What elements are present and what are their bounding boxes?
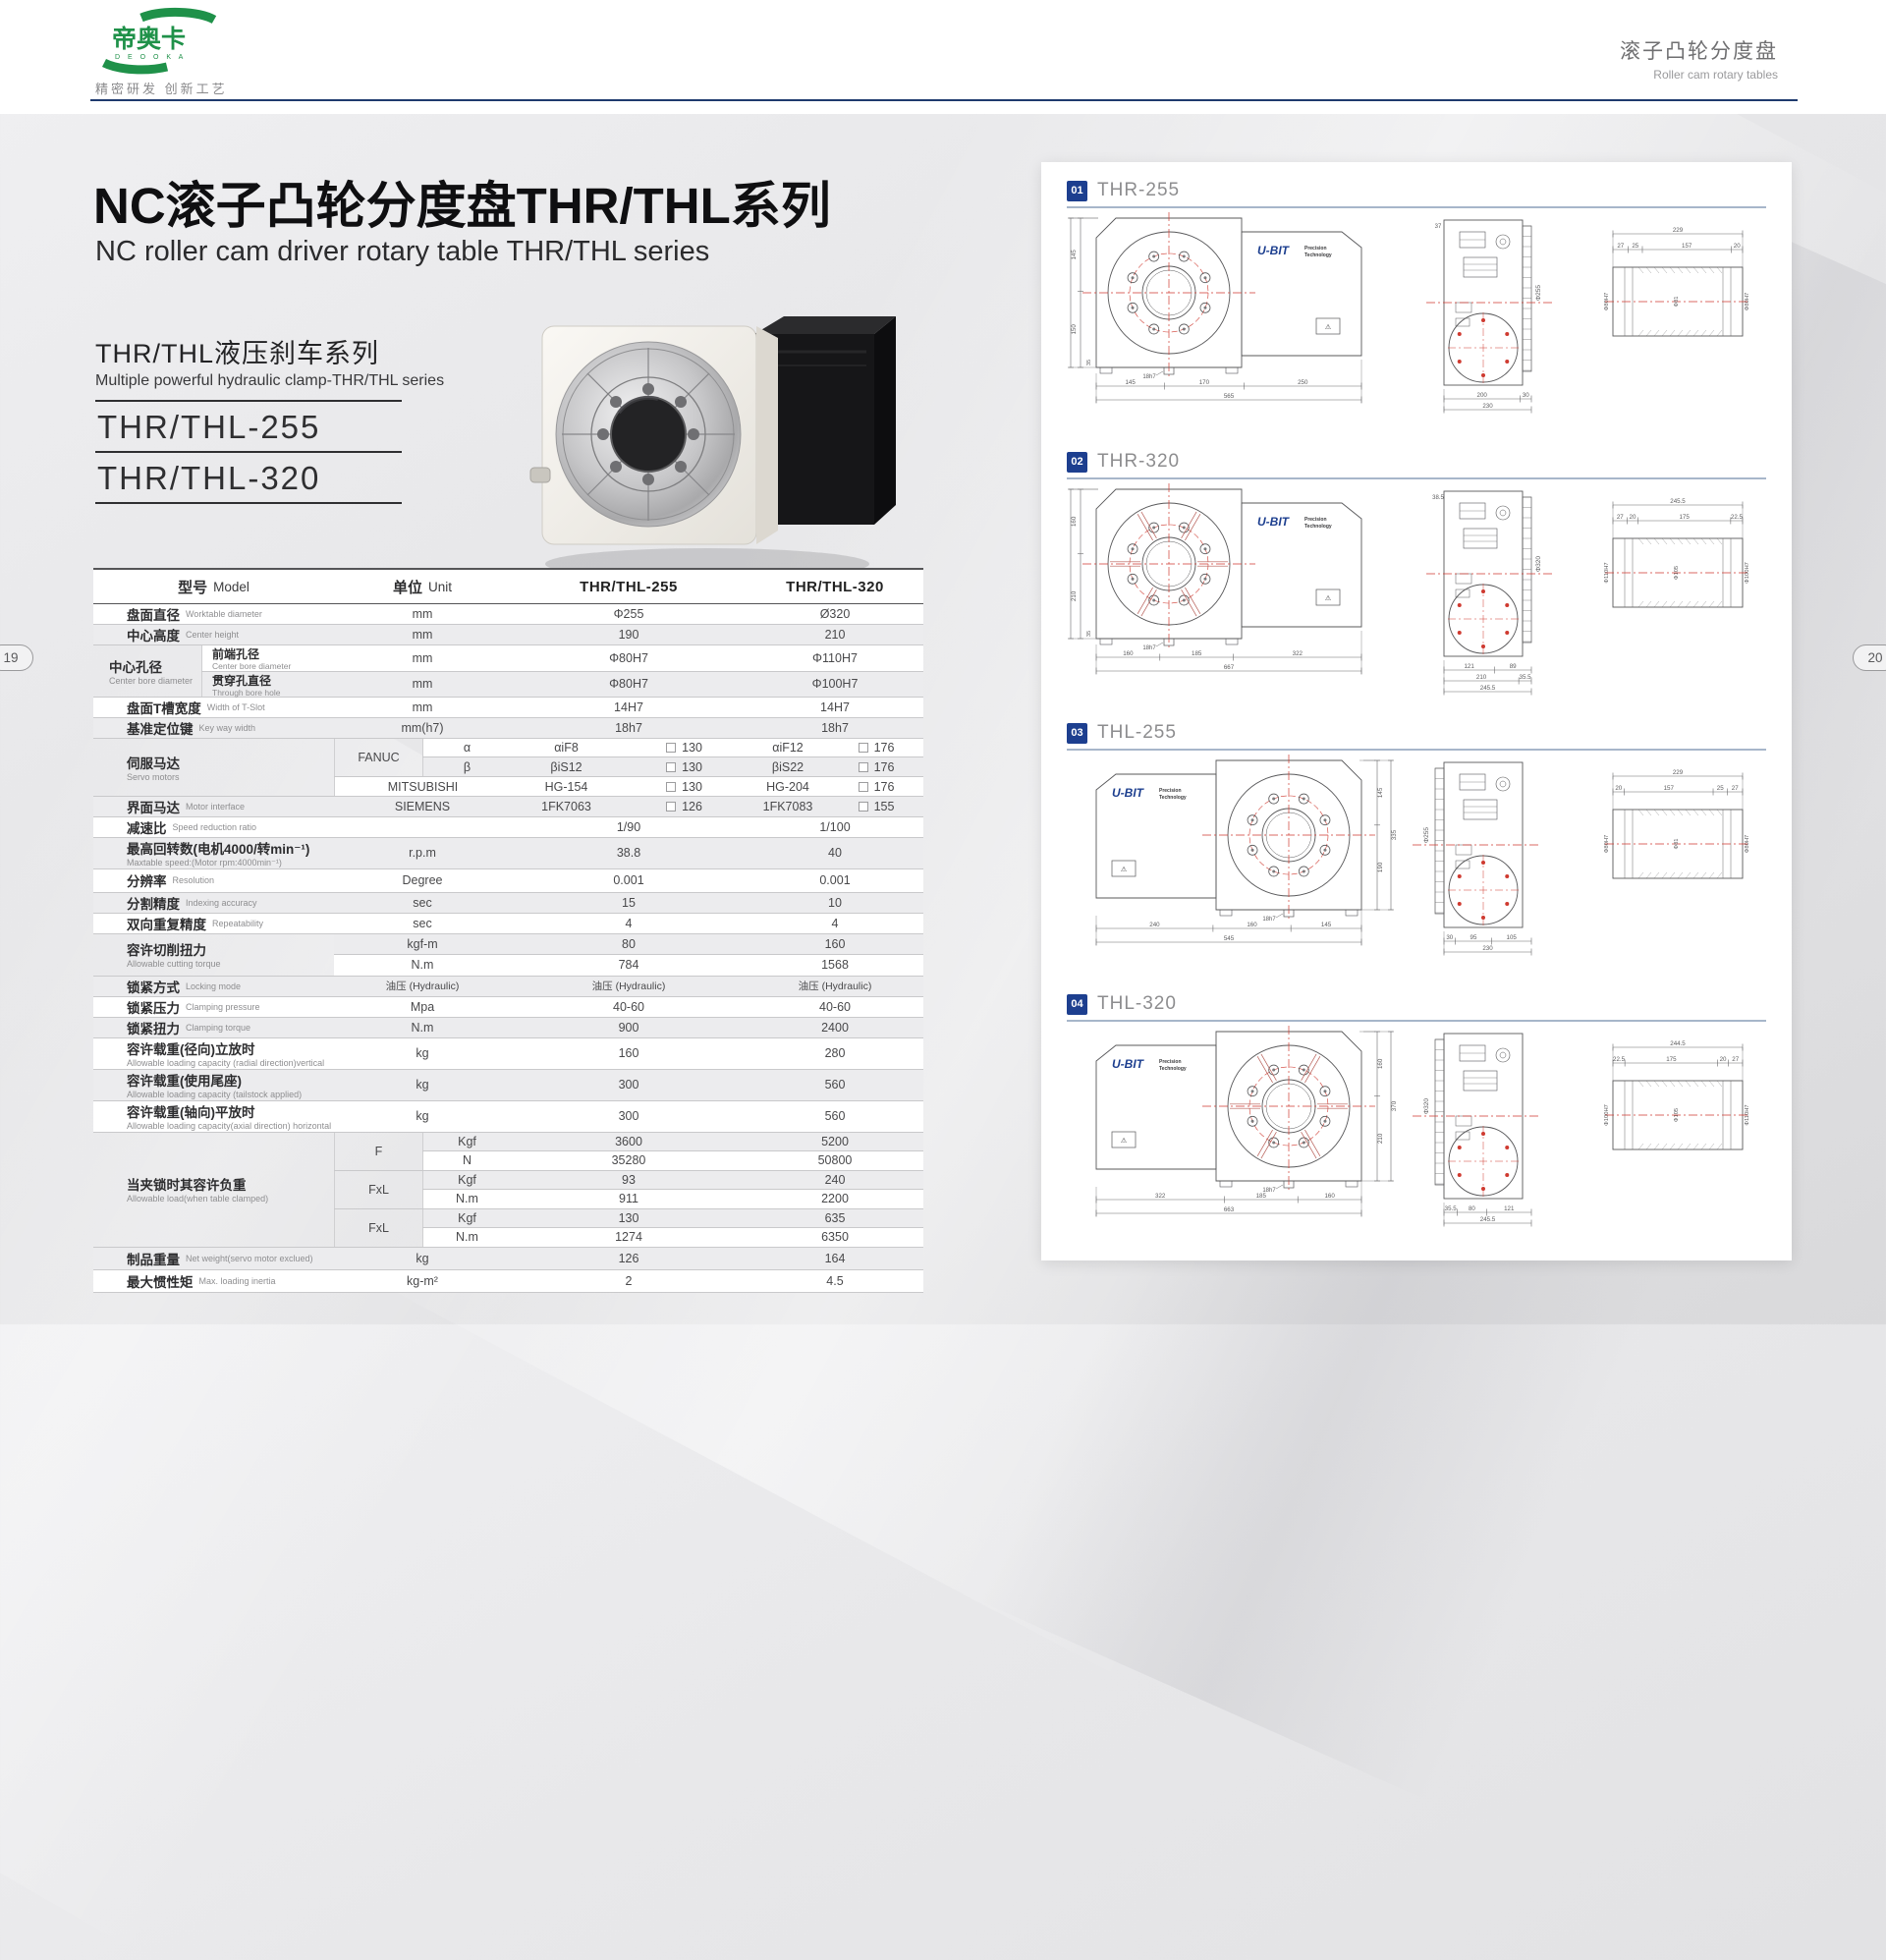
label-zh: 减速比 — [127, 817, 167, 837]
model-name: THR/THL-320 — [95, 453, 402, 504]
svg-text:185: 185 — [1192, 650, 1202, 657]
row-label: 当夹锁时其容许负重Allowable load(when table clamp… — [93, 1133, 334, 1247]
force-label: FxL — [334, 1209, 422, 1247]
end-view: 229201572527Φ80H7Φ81Φ80H7 — [1604, 769, 1750, 878]
value-cell: 130 — [511, 1209, 747, 1227]
svg-text:Precision: Precision — [1304, 246, 1327, 252]
page-number-left: 19 — [0, 644, 33, 671]
label-zh: 最大惯性矩 — [127, 1271, 194, 1291]
label-en: Indexing accuracy — [186, 898, 257, 908]
label-en: Center bore diameter — [212, 662, 334, 671]
value-cell: 911 — [511, 1190, 747, 1208]
svg-text:U-BIT: U-BIT — [1257, 515, 1291, 529]
series-title-zh: THR/THL液压刹车系列 — [95, 332, 402, 370]
svg-text:27: 27 — [1617, 514, 1624, 521]
value-cell: 2200 — [747, 1190, 923, 1208]
technical-drawing: U-BITPrecisionTechnology⚠145190335240160… — [1067, 751, 1760, 971]
unit-cell: N.m — [422, 1190, 511, 1208]
svg-text:210: 210 — [1476, 674, 1487, 681]
value-cell: HG-154 — [511, 777, 622, 796]
value-cell: mm — [334, 672, 511, 698]
svg-text:Φ100H7: Φ100H7 — [1604, 1104, 1610, 1126]
svg-text:⚠: ⚠ — [1121, 866, 1128, 873]
row-sublabel: 贯穿孔直径Through bore hole — [201, 672, 334, 698]
product-photo — [521, 283, 906, 589]
row-label: 容许切削扭力Allowable cutting torque — [93, 934, 334, 976]
label-en: Allowable load(when table clamped) — [127, 1195, 268, 1204]
svg-text:663: 663 — [1224, 1206, 1235, 1213]
value-cell: 300 — [511, 1101, 747, 1132]
section-number-badge: 03 — [1067, 723, 1087, 744]
label-zh: 当夹锁时其容许负重 — [127, 1174, 247, 1194]
table-row: 前端孔径Center bore diametermmΦ80H7Φ110H7 — [201, 645, 923, 672]
value-cell: βiS22 — [747, 757, 829, 776]
svg-text:Φ80H7: Φ80H7 — [1745, 293, 1750, 310]
force-rows: Kgf93240N.m9112200 — [422, 1171, 923, 1208]
svg-text:200: 200 — [1477, 392, 1488, 399]
svg-text:35.5: 35.5 — [1520, 674, 1532, 681]
svg-text:157: 157 — [1664, 785, 1675, 792]
row-label: 锁紧压力Clamping pressure — [93, 997, 334, 1017]
value-cell: Φ80H7 — [511, 645, 747, 671]
label-en: Motor interface — [186, 802, 245, 812]
table-row: 锁紧扭力Clamping torqueN.m9002400 — [93, 1018, 923, 1038]
value-cell: sec — [334, 893, 511, 913]
section-title: THR-320 — [1097, 451, 1180, 473]
flange-size: 155 — [829, 797, 923, 816]
value-cell: mm(h7) — [334, 718, 511, 738]
svg-text:89: 89 — [1510, 663, 1517, 670]
label-en: Through bore hole — [212, 689, 334, 698]
value-cell: Mpa — [334, 997, 511, 1017]
svg-text:175: 175 — [1666, 1056, 1677, 1063]
value-cell: 240 — [747, 1171, 923, 1189]
logo-zh: 帝奥卡 — [112, 25, 186, 53]
table-row: 盘面T槽宽度Width of T-Slotmm14H714H7 — [93, 698, 923, 718]
svg-text:565: 565 — [1224, 393, 1235, 400]
row-label: 最高回转数(电机4000/转min⁻¹)Maxtable speed:(Moto… — [93, 838, 334, 868]
value-cell: 210 — [747, 625, 923, 644]
label-en: Center bore diameter — [109, 677, 193, 687]
label-zh: 型号 — [178, 577, 207, 597]
value-cell: sec — [334, 914, 511, 933]
value-cell: 2 — [511, 1270, 747, 1292]
flange-size: 176 — [829, 777, 923, 796]
table-row: 容许载重(径向)立放时Allowable loading capacity (r… — [93, 1038, 923, 1070]
value-cell: Degree — [334, 869, 511, 892]
label-zh: 容许载重(使用尾座) — [127, 1070, 242, 1090]
row-label: 最大惯性矩Max. loading inertia — [93, 1270, 334, 1292]
svg-text:18h7: 18h7 — [1142, 645, 1156, 651]
row-label: 锁紧方式Locking mode — [93, 977, 334, 996]
svg-text:210: 210 — [1377, 1133, 1384, 1144]
flange-size: 176 — [829, 757, 923, 776]
svg-text:160: 160 — [1071, 516, 1078, 527]
label-zh: 贯穿孔直径 — [212, 672, 334, 689]
value-cell: 10 — [747, 893, 923, 913]
unit-cell: Kgf — [422, 1133, 511, 1150]
svg-text:Technology: Technology — [1159, 795, 1187, 801]
table-row: Kgf93240 — [422, 1171, 923, 1190]
label-zh: 最高回转数(电机4000/转min⁻¹) — [127, 838, 309, 858]
side-view: Φ32038.51218921035.5245.5 — [1426, 491, 1554, 696]
svg-text:335: 335 — [1391, 829, 1398, 840]
svg-text:20: 20 — [1630, 514, 1636, 521]
label-en: Worktable diameter — [186, 609, 262, 619]
value-cell: mm — [334, 698, 511, 717]
table-row: ααiF8130αiF12176 — [422, 739, 923, 757]
svg-text:175: 175 — [1679, 514, 1690, 521]
svg-text:Precision: Precision — [1304, 517, 1327, 523]
value-cell: 1274 — [511, 1228, 747, 1247]
label-zh: 锁紧扭力 — [127, 1018, 180, 1037]
unit-cell: Kgf — [422, 1209, 511, 1227]
svg-text:Φ105: Φ105 — [1674, 1108, 1680, 1122]
category-zh: 滚子凸轮分度盘 — [1620, 35, 1778, 65]
svg-text:22.5: 22.5 — [1613, 1056, 1626, 1063]
value-cell: 0.001 — [511, 869, 747, 892]
value-cell: 40 — [747, 838, 923, 868]
table-row: 最高回转数(电机4000/转min⁻¹)Maxtable speed:(Moto… — [93, 838, 923, 869]
fanuc-group: FANUCααiF8130αiF12176ββiS12130βiS22176 — [334, 739, 923, 777]
svg-text:157: 157 — [1682, 243, 1692, 250]
row-sublabel: 前端孔径Center bore diameter — [201, 645, 334, 671]
svg-text:Φ110H7: Φ110H7 — [1745, 1104, 1750, 1125]
checkbox-icon — [666, 802, 676, 812]
svg-text:121: 121 — [1464, 663, 1474, 670]
section-number-badge: 02 — [1067, 452, 1087, 473]
section-title: THR-255 — [1097, 180, 1180, 201]
svg-text:545: 545 — [1224, 935, 1235, 942]
value-cell: 1/100 — [747, 817, 923, 837]
svg-text:35: 35 — [1086, 360, 1092, 365]
section-header: 03THL-255 — [1067, 722, 1766, 751]
svg-text:U-BIT: U-BIT — [1257, 244, 1291, 257]
svg-text:Precision: Precision — [1159, 1059, 1182, 1065]
table-row: N3528050800 — [422, 1151, 923, 1170]
value-cell: 160 — [511, 1038, 747, 1069]
label-en: Max. loading inertia — [199, 1276, 276, 1286]
value-cell: mm — [334, 625, 511, 644]
label-zh: 界面马达 — [127, 797, 180, 816]
row-label: 中心孔径Center bore diameter — [93, 645, 201, 697]
svg-text:95: 95 — [1470, 934, 1477, 941]
page-title-zh: NC滚子凸轮分度盘THR/THL系列 — [93, 165, 831, 238]
svg-text:230: 230 — [1482, 403, 1493, 410]
label-en: Net weight(servo motor exclued) — [186, 1254, 313, 1263]
checkbox-icon — [666, 743, 676, 753]
value-cell: 784 — [511, 955, 747, 976]
svg-text:Precision: Precision — [1159, 788, 1182, 794]
table-row: ββiS12130βiS22176 — [422, 757, 923, 776]
force-pair: FxLKgf130635N.m12746350 — [334, 1209, 923, 1247]
label-en: Width of T-Slot — [207, 702, 265, 712]
svg-text:322: 322 — [1293, 650, 1304, 657]
value-cell: 160 — [747, 934, 923, 954]
checkbox-icon — [859, 802, 868, 812]
end-view: 229272515720Φ80H7Φ81Φ80H7 — [1604, 227, 1750, 336]
value-cell: mm — [334, 604, 511, 624]
label-en: Servo motors — [127, 773, 180, 783]
drawing-section-thr-320: 02THR-320U-BITPrecisionTechnology⚠160210… — [1067, 451, 1766, 718]
section-title: THL-255 — [1097, 722, 1177, 744]
table-row: 分辨率ResolutionDegree0.0010.001 — [93, 869, 923, 893]
table-group-row: 容许切削扭力Allowable cutting torquekgf-m80160… — [93, 934, 923, 977]
flange-size: 130 — [622, 757, 747, 776]
greek-cell: β — [422, 757, 511, 776]
svg-text:160: 160 — [1377, 1058, 1384, 1069]
row-label: 中心高度Center height — [93, 625, 334, 644]
section-number-badge: 01 — [1067, 181, 1087, 201]
value-cell: 0.001 — [747, 869, 923, 892]
label-zh: 锁紧方式 — [127, 977, 180, 996]
value-cell: 18h7 — [511, 718, 747, 738]
value-cell: 4 — [747, 914, 923, 933]
value-cell: 油压 (Hydraulic) — [747, 977, 923, 996]
side-view: Φ2553095105230 — [1413, 762, 1538, 956]
row-label: 双向重复精度Repeatability — [93, 914, 334, 933]
value-cell: Φ100H7 — [747, 672, 923, 698]
brand-logo: 帝奥卡 D E O O K A — [98, 6, 226, 77]
value-cell: αiF8 — [511, 739, 622, 756]
value-cell: 280 — [747, 1038, 923, 1069]
side-view: Φ32035.580121245.5 — [1413, 1034, 1538, 1227]
spec-table: 型号Model单位UnitTHR/THL-255THR/THL-320盘面直径W… — [93, 568, 923, 1293]
section-header: 02THR-320 — [1067, 451, 1766, 479]
page-title-en: NC roller cam driver rotary table THR/TH… — [95, 236, 709, 268]
label-en: Center height — [186, 630, 239, 640]
front-view: U-BITPrecisionTechnology⚠160210370160185… — [1067, 483, 1361, 675]
header-col-255: THR/THL-255 — [511, 570, 747, 603]
label-zh: 分辨率 — [127, 870, 167, 890]
flange-size: 130 — [622, 739, 747, 756]
value-cell: 126 — [511, 1248, 747, 1269]
svg-text:Φ105: Φ105 — [1674, 566, 1680, 580]
svg-text:185: 185 — [1256, 1193, 1267, 1200]
table-row: 锁紧压力Clamping pressureMpa40-6040-60 — [93, 997, 923, 1018]
svg-text:145: 145 — [1377, 787, 1384, 798]
drawing-section-thl-320: 04THL-320U-BITPrecisionTechnology⚠160210… — [1067, 993, 1766, 1260]
label-en: THR/THL-320 — [786, 579, 884, 595]
model-list: THR/THL-255 THR/THL-320 — [95, 400, 402, 504]
svg-text:Φ100H7: Φ100H7 — [1745, 562, 1750, 584]
svg-text:U-BIT: U-BIT — [1112, 786, 1145, 800]
svg-text:Φ320: Φ320 — [1535, 556, 1542, 572]
label-en: Repeatability — [212, 919, 263, 928]
svg-text:Technology: Technology — [1304, 524, 1332, 530]
row-label: 盘面T槽宽度Width of T-Slot — [93, 698, 334, 717]
value-cell: Φ110H7 — [747, 645, 923, 671]
label-zh: 容许切削扭力 — [127, 939, 206, 959]
row-label: 分辨率Resolution — [93, 869, 334, 892]
label-zh: 盘面直径 — [127, 604, 180, 624]
series-block: THR/THL液压刹车系列 Multiple powerful hydrauli… — [95, 332, 402, 504]
table-row: Kgf130635 — [422, 1209, 923, 1228]
value-cell: 900 — [511, 1018, 747, 1037]
value-cell: 1FK7083 — [747, 797, 829, 816]
svg-text:170: 170 — [1199, 379, 1210, 386]
value-cell: Ø320 — [747, 604, 923, 624]
drawings-card: 01THR-255U-BITPrecisionTechnology⚠145150… — [1041, 162, 1792, 1260]
front-view: U-BITPrecisionTechnology⚠160210370322185… — [1096, 1026, 1398, 1217]
svg-text:335: 335 — [1067, 287, 1068, 298]
side-view: Φ2553720030230 — [1426, 220, 1554, 414]
value-cell: 300 — [511, 1070, 747, 1100]
value-cell: 560 — [747, 1070, 923, 1100]
label-en: Key way width — [199, 723, 256, 733]
svg-text:18h7: 18h7 — [1262, 1188, 1276, 1194]
value-cell: 4.5 — [747, 1270, 923, 1292]
table-row: N.m9112200 — [422, 1190, 923, 1208]
value-cell: 2400 — [747, 1018, 923, 1037]
label-en: Allowable loading capacity(axial directi… — [127, 1122, 331, 1132]
unit-cell: N.m — [422, 1228, 511, 1247]
svg-text:245.5: 245.5 — [1480, 1216, 1496, 1223]
svg-text:250: 250 — [1298, 379, 1308, 386]
svg-text:25: 25 — [1632, 243, 1638, 250]
model-name: THR/THL-255 — [95, 402, 402, 453]
value-cell: 1/90 — [511, 817, 747, 837]
svg-text:Φ255: Φ255 — [1423, 827, 1430, 843]
svg-text:160: 160 — [1324, 1193, 1335, 1200]
svg-text:U-BIT: U-BIT — [1112, 1057, 1145, 1071]
value-cell: 5200 — [747, 1133, 923, 1150]
value-cell: 50800 — [747, 1151, 923, 1170]
table-row: 容许载重(轴向)平放时Allowable loading capacity(ax… — [93, 1101, 923, 1133]
svg-text:20: 20 — [1720, 1056, 1727, 1063]
value-cell: 93 — [511, 1171, 747, 1189]
svg-text:37: 37 — [1435, 224, 1442, 230]
checkbox-icon — [859, 762, 868, 772]
label-en: Locking mode — [186, 981, 241, 991]
label-en: Speed reduction ratio — [173, 822, 257, 832]
row-label: 伺服马达Servo motors — [93, 739, 334, 796]
svg-text:Technology: Technology — [1159, 1066, 1187, 1072]
unit-cell: N — [422, 1151, 511, 1170]
svg-text:Φ81: Φ81 — [1674, 296, 1680, 307]
table-group-row: 伺服马达Servo motorsFANUCααiF8130αiF12176ββi… — [93, 739, 923, 797]
value-cell: kgf-m — [334, 934, 511, 954]
value-cell: 1FK7063 — [511, 797, 622, 816]
svg-text:150: 150 — [1071, 324, 1078, 335]
value-cell: 4 — [511, 914, 747, 933]
svg-text:25: 25 — [1717, 785, 1724, 792]
force-label: F — [334, 1133, 422, 1170]
value-cell: 35280 — [511, 1151, 747, 1170]
svg-text:Φ80H7: Φ80H7 — [1604, 835, 1610, 853]
table-row: Kgf36005200 — [422, 1133, 923, 1151]
value-cell: 164 — [747, 1248, 923, 1269]
row-label: 制品重量Net weight(servo motor exclued) — [93, 1248, 334, 1269]
series-title-en: Multiple powerful hydraulic clamp-THR/TH… — [95, 372, 402, 390]
group-rows: kgf-m80160N.m7841568 — [334, 934, 923, 976]
table-row: N.m7841568 — [334, 955, 923, 976]
table-row: 制品重量Net weight(servo motor exclued)kg126… — [93, 1248, 923, 1270]
drawing-section-thl-255: 03THL-255U-BITPrecisionTechnology⚠145190… — [1067, 722, 1766, 989]
table-row: 基准定位键Key way widthmm(h7)18h718h7 — [93, 718, 923, 739]
value-cell: kg-m² — [334, 1270, 511, 1292]
table-row: MITSUBISHIHG-154130HG-204176 — [334, 777, 923, 796]
row-label: 容许载重(径向)立放时Allowable loading capacity (r… — [93, 1038, 334, 1069]
flange-size: 126 — [622, 797, 747, 816]
brand-cell: MITSUBISHI — [334, 777, 511, 796]
label-zh: 盘面T槽宽度 — [127, 698, 201, 717]
value-cell: 6350 — [747, 1228, 923, 1247]
row-label: 界面马达Motor interface — [93, 797, 334, 816]
checkbox-icon — [666, 782, 676, 792]
unit-cell: Kgf — [422, 1171, 511, 1189]
end-view: 245.5272017522.5Φ110H7Φ105Φ100H7 — [1604, 498, 1750, 607]
logo-swoosh-top — [141, 12, 214, 20]
flange-size: 176 — [829, 739, 923, 756]
page-number-right: 20 — [1853, 644, 1886, 671]
fanuc-rows: ααiF8130αiF12176ββiS12130βiS22176 — [422, 739, 923, 776]
svg-text:210: 210 — [1071, 590, 1078, 601]
header-col-320: THR/THL-320 — [747, 570, 923, 603]
svg-text:160: 160 — [1247, 922, 1257, 928]
table-row: 界面马达Motor interfaceSIEMENS1FK70631261FK7… — [93, 797, 923, 817]
svg-text:30: 30 — [1523, 392, 1529, 399]
svg-text:Φ80H7: Φ80H7 — [1745, 835, 1750, 853]
svg-text:245.5: 245.5 — [1480, 685, 1496, 692]
category-en: Roller cam rotary tables — [1620, 68, 1778, 82]
label-en: Unit — [428, 580, 452, 594]
svg-text:160: 160 — [1123, 650, 1134, 657]
value-cell: mm — [334, 645, 511, 671]
svg-text:35.5: 35.5 — [1445, 1205, 1458, 1212]
svg-text:Φ81: Φ81 — [1674, 838, 1680, 849]
svg-text:145: 145 — [1071, 250, 1078, 260]
svg-text:80: 80 — [1469, 1205, 1475, 1212]
label-zh: 容许载重(径向)立放时 — [127, 1038, 255, 1058]
force-rows: Kgf130635N.m12746350 — [422, 1209, 923, 1247]
label-zh: 双向重复精度 — [127, 914, 206, 933]
logo-latin: D E O O K A — [115, 54, 186, 61]
value-cell: 14H7 — [747, 698, 923, 717]
svg-text:20: 20 — [1615, 785, 1622, 792]
table-row: 双向重复精度Repeatabilitysec44 — [93, 914, 923, 934]
svg-text:35: 35 — [1086, 631, 1092, 637]
technical-drawing: U-BITPrecisionTechnology⚠160210370160185… — [1067, 479, 1760, 700]
svg-text:⚠: ⚠ — [1121, 1137, 1128, 1145]
label-en: Clamping pressure — [186, 1002, 260, 1012]
svg-text:27: 27 — [1732, 1056, 1739, 1063]
svg-text:145: 145 — [1125, 379, 1136, 386]
svg-text:370: 370 — [1067, 558, 1068, 569]
technical-drawing: U-BITPrecisionTechnology⚠145150335145170… — [1067, 208, 1760, 428]
label-en: Allowable cutting torque — [127, 960, 221, 970]
row-label: 基准定位键Key way width — [93, 718, 334, 738]
end-view: 244.522.51752027Φ100H7Φ105Φ110H7 — [1604, 1040, 1750, 1149]
label-zh: 中心孔径 — [109, 656, 162, 676]
value-cell: 38.8 — [511, 838, 747, 868]
svg-text:230: 230 — [1482, 945, 1493, 952]
table-row: 最大惯性矩Max. loading inertiakg-m²24.5 — [93, 1270, 923, 1293]
svg-text:121: 121 — [1504, 1205, 1515, 1212]
label-en: Allowable loading capacity (radial direc… — [127, 1059, 324, 1069]
value-cell: r.p.m — [334, 838, 511, 868]
value-cell: 18h7 — [747, 718, 923, 738]
greek-cell: α — [422, 739, 511, 756]
brand-tagline: 精密研发 创新工艺 — [95, 79, 228, 97]
table-row: 中心高度Center heightmm190210 — [93, 625, 923, 645]
label-zh: 单位 — [393, 577, 422, 597]
label-en: Model — [213, 580, 250, 594]
row-label: 分割精度Indexing accuracy — [93, 893, 334, 913]
svg-text:30: 30 — [1446, 934, 1453, 941]
table-row: kgf-m80160 — [334, 934, 923, 955]
svg-text:Φ320: Φ320 — [1423, 1098, 1430, 1114]
